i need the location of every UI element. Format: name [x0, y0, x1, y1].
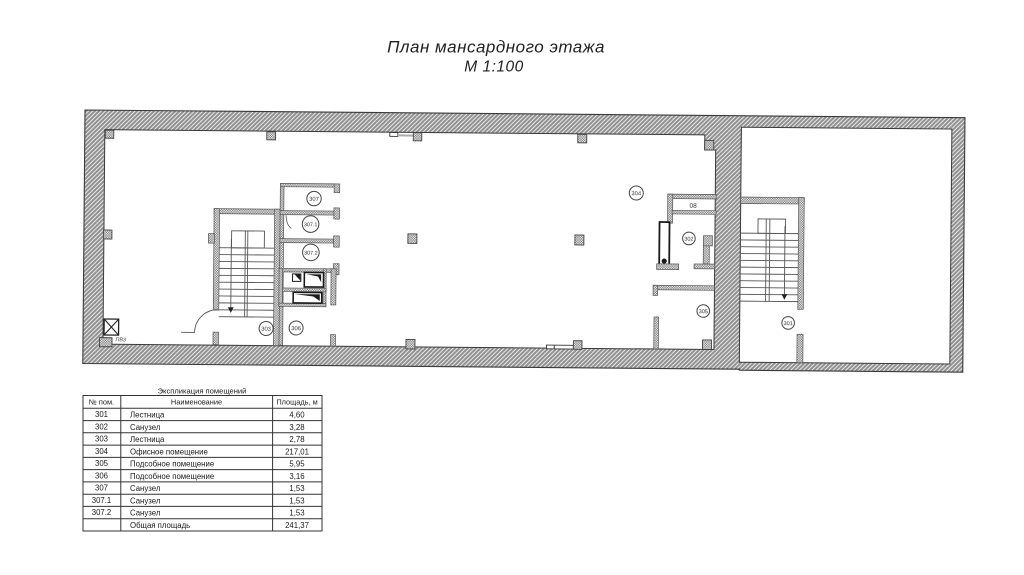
svg-text:Экспликация помещений: Экспликация помещений — [158, 387, 247, 396]
svg-text:217,01: 217,01 — [285, 447, 309, 456]
svg-text:4,60: 4,60 — [289, 411, 305, 420]
svg-text:306: 306 — [95, 471, 108, 480]
svg-text:301: 301 — [95, 410, 108, 419]
svg-text:305: 305 — [95, 459, 109, 468]
svg-text:М 1:100: М 1:100 — [464, 59, 524, 76]
svg-text:307: 307 — [309, 197, 319, 203]
svg-text:Санузел: Санузел — [130, 423, 161, 432]
svg-text:Лестница: Лестница — [130, 411, 165, 420]
svg-text:Лестница: Лестница — [130, 435, 165, 444]
svg-text:307.2: 307.2 — [304, 251, 318, 257]
svg-text:303: 303 — [261, 327, 271, 333]
svg-text:241,37: 241,37 — [285, 521, 309, 530]
svg-text:Офисное помещение: Офисное помещение — [130, 447, 208, 456]
svg-text:3,16: 3,16 — [289, 472, 304, 481]
svg-text:307.1: 307.1 — [92, 496, 112, 505]
svg-text:Санузел: Санузел — [130, 509, 161, 518]
svg-text:Подсобное помещение: Подсобное помещение — [130, 472, 214, 481]
svg-text:08: 08 — [690, 203, 698, 210]
svg-text:301: 301 — [783, 321, 792, 327]
svg-text:Санузел: Санузел — [130, 497, 161, 506]
svg-text:Общая площадь: Общая площадь — [130, 521, 190, 530]
svg-text:Подсобное помещение: Подсобное помещение — [130, 460, 214, 469]
svg-text:307.1: 307.1 — [304, 222, 318, 228]
svg-text:Площадь, м: Площадь, м — [276, 398, 317, 407]
svg-text:1,53: 1,53 — [289, 497, 304, 506]
svg-text:5,95: 5,95 — [289, 460, 305, 469]
svg-text:305: 305 — [699, 309, 708, 315]
svg-text:1,53: 1,53 — [289, 484, 304, 493]
svg-text:ПВ3: ПВ3 — [115, 337, 126, 343]
svg-text:Санузел: Санузел — [130, 484, 161, 493]
svg-text:1,53: 1,53 — [289, 509, 304, 518]
svg-text:304: 304 — [95, 447, 109, 456]
svg-text:302: 302 — [684, 237, 693, 243]
svg-text:Наименование: Наименование — [171, 398, 222, 407]
svg-text:306: 306 — [291, 326, 301, 332]
svg-text:№ пом.: № пом. — [89, 398, 114, 407]
svg-text:307.2: 307.2 — [92, 508, 112, 517]
svg-text:2,78: 2,78 — [289, 435, 304, 444]
svg-text:3,28: 3,28 — [289, 423, 304, 432]
svg-text:План мансардного этажа: План мансардного этажа — [387, 38, 605, 57]
svg-text:303: 303 — [95, 435, 108, 444]
svg-text:307: 307 — [95, 484, 108, 493]
svg-text:304: 304 — [631, 191, 641, 197]
svg-text:302: 302 — [95, 422, 108, 431]
